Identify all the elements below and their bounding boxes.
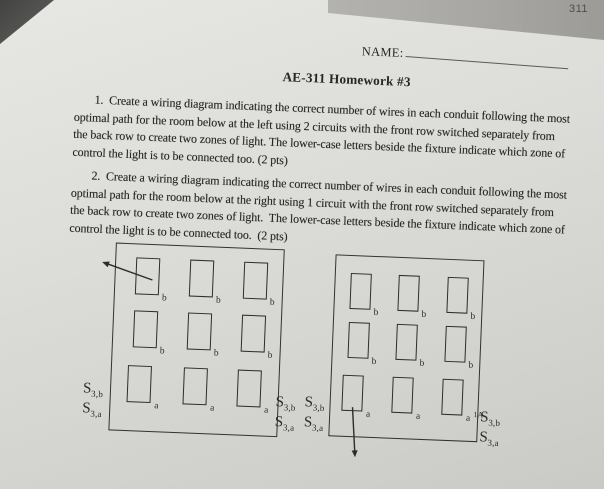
light-fixture: b: [446, 277, 468, 314]
light-fixture: b: [347, 322, 369, 359]
fixture-zone-label: b: [268, 351, 273, 361]
fixture-zone-label: b: [270, 298, 275, 308]
switch-label: S3,a: [479, 429, 499, 448]
fixture-zone-label: b: [216, 296, 221, 306]
light-fixture: b: [241, 315, 266, 353]
fixture-zone-label: a: [264, 406, 269, 416]
switch-label: S3,b: [304, 394, 325, 413]
switch-subscript: 3,b: [488, 418, 500, 428]
switch-subscript: 3,a: [312, 423, 324, 433]
switch-subscript: 3,b: [91, 389, 103, 399]
switch-label: S3,b: [275, 394, 296, 413]
paper-sheet: NAME: AE-311 Homework #3 1. Create a wir…: [0, 0, 604, 489]
light-fixture: b: [349, 273, 371, 310]
fixture-zone-label: a: [210, 403, 215, 413]
switch-subscript: 3,a: [90, 409, 102, 419]
light-fixture: a: [127, 365, 152, 403]
home-run-arrow-icon: [93, 251, 158, 288]
light-fixture: b: [187, 312, 212, 350]
name-label: NAME:: [362, 44, 404, 60]
switch-label: S3,a: [82, 400, 102, 419]
fixture-zone-label: a: [466, 414, 471, 424]
name-row: NAME:: [361, 41, 568, 67]
fixture-zone-label: a: [154, 401, 159, 411]
fixture-zone-label: b: [419, 359, 424, 369]
photo-scene: NAME: AE-311 Homework #3 1. Create a wir…: [0, 0, 604, 489]
question-1-text: 1. Create a wiring diagram indicating th…: [72, 91, 604, 182]
fixture-zone-label: b: [470, 312, 475, 322]
homework-page: NAME: AE-311 Homework #3 1. Create a wir…: [0, 0, 604, 489]
room-diagram-left: b b b b b b a a a S3,b S3,a S3,b S3,a: [108, 243, 284, 438]
light-fixture: b: [243, 262, 268, 300]
name-underline: [405, 43, 569, 69]
fixture-zone-label: b: [160, 346, 165, 356]
light-fixture: b: [444, 326, 466, 363]
switch-subscript: 3,b: [284, 402, 296, 412]
fixture-zone-label: b: [162, 293, 167, 303]
switch-label: S3,b: [83, 380, 104, 399]
fixture-zone-label: b: [214, 349, 219, 359]
light-fixture: b: [397, 275, 419, 312]
light-fixture: b: [395, 324, 417, 361]
home-run-arrow-icon: [342, 403, 370, 462]
switch-label: S3,b: [480, 409, 501, 428]
light-fixture: b: [189, 260, 214, 298]
switch-label: S3,a: [303, 414, 323, 433]
page-corner-number: 311: [569, 3, 588, 15]
fixture-zone-label: b: [373, 308, 378, 318]
switch-subscript: 3,a: [283, 422, 295, 432]
switch-label: S3,a: [274, 414, 294, 433]
light-fixture: a: [391, 377, 413, 414]
light-fixture: a: [236, 370, 261, 408]
light-fixture: b: [133, 310, 158, 348]
switch-subscript: 3,a: [487, 438, 499, 448]
homework-title: AE-311 Homework #3: [246, 68, 446, 92]
fixture-zone-label: b: [421, 310, 426, 320]
fixture-zone-label: a: [416, 412, 421, 422]
room-diagram-right: b b b b b b a a a1A S3,b S3,a S3,b S3,a: [328, 254, 484, 442]
switch-subscript: 3,b: [313, 403, 325, 413]
fixture-zone-label: b: [371, 357, 376, 367]
light-fixture: a1A: [441, 379, 463, 416]
light-fixture: a: [182, 367, 207, 405]
fixture-zone-label: b: [468, 361, 473, 371]
